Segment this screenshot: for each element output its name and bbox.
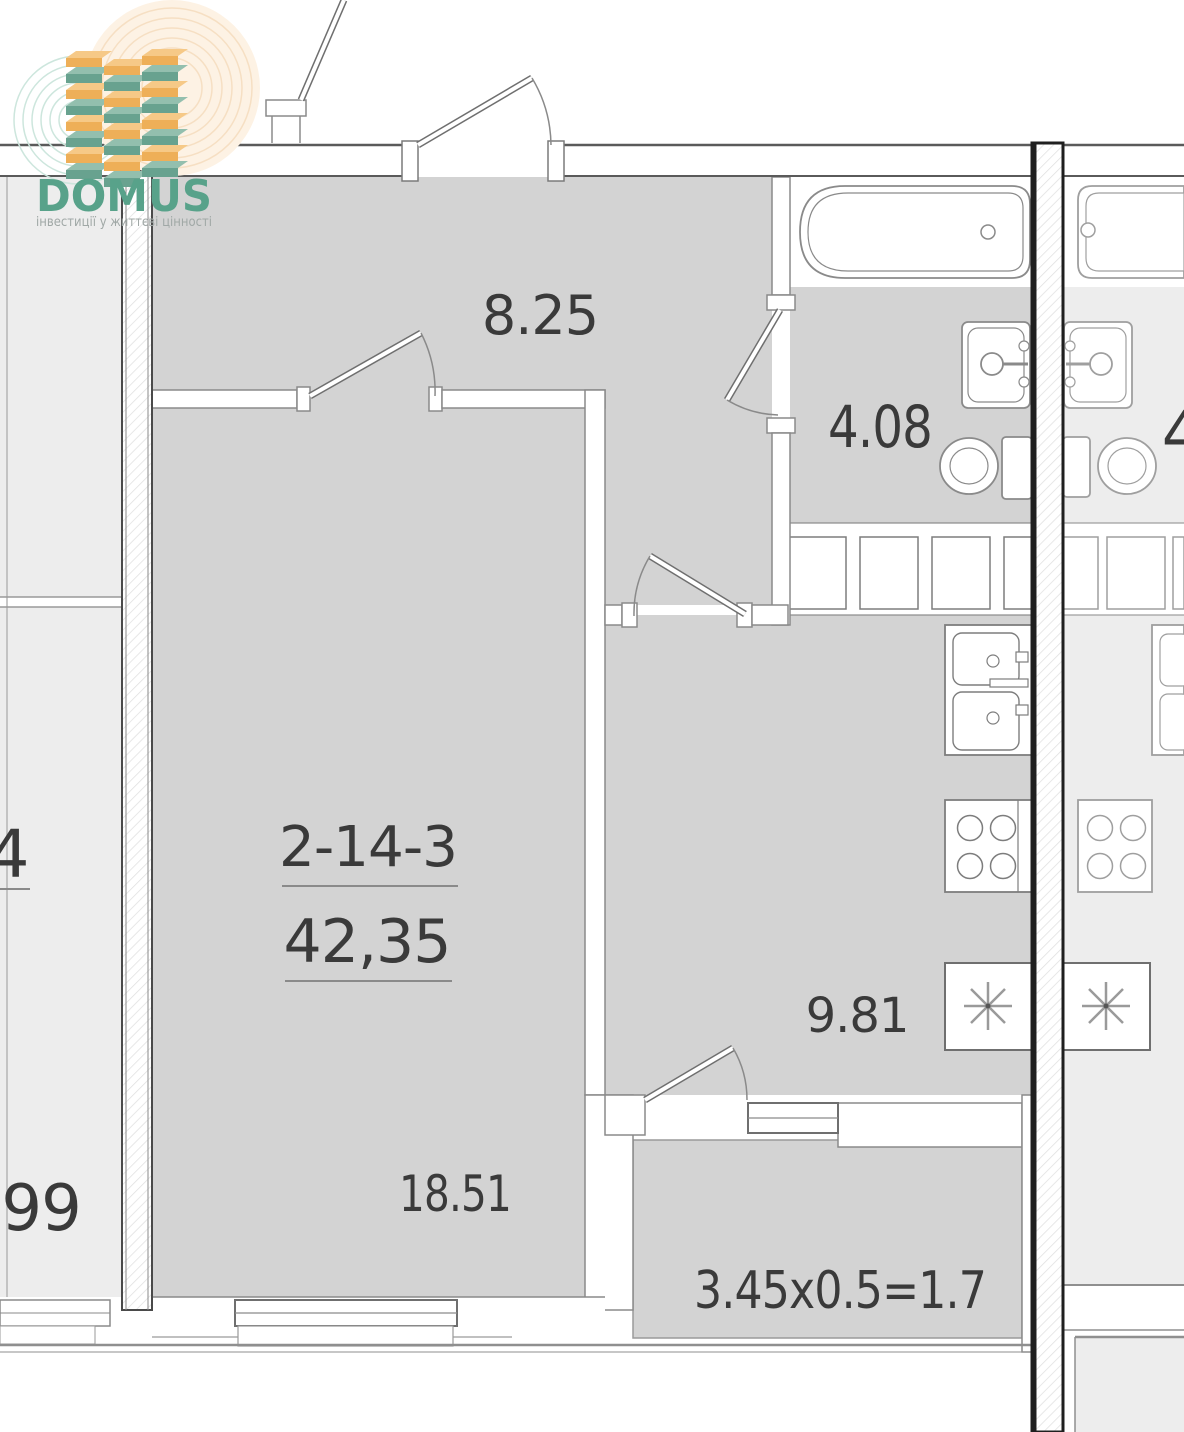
door-jamb <box>297 387 310 411</box>
neighbor-toilet-icon <box>1063 437 1156 497</box>
kitchen-sink-icon <box>945 625 1032 755</box>
neighbor-left-unit <box>0 177 122 1344</box>
door-jamb <box>767 418 795 433</box>
entrance-door-swing <box>418 78 551 145</box>
label-hallway-area: 8.25 <box>482 284 598 347</box>
hatched-wall <box>122 170 152 1310</box>
door-jamb <box>548 141 564 181</box>
label-living-area: 18.51 <box>399 1165 511 1223</box>
floor-plan: 8.25 4.08 9.81 2-14-3 42,35 18.51 3.45x0… <box>0 0 1184 1432</box>
door-jamb <box>767 295 795 310</box>
bathtub-icon <box>800 186 1030 278</box>
neighbor-right-unit <box>1063 186 1184 1432</box>
stove-icon <box>945 800 1032 892</box>
label-neighbor-left-area: .99 <box>0 1172 81 1246</box>
neighbor-bathtub-icon <box>1078 186 1184 278</box>
neighbor-sink-icon <box>1064 322 1132 408</box>
wall-hall-bath-lower <box>772 433 790 625</box>
wall-living-kitchen <box>585 390 605 1095</box>
party-wall <box>1032 143 1063 1432</box>
label-unit-id: 2-14-3 <box>279 815 457 880</box>
door-jamb <box>605 1095 645 1135</box>
label-neighbor-right-area: 4 <box>1162 397 1184 470</box>
wall-kitchen-top-right <box>752 605 788 625</box>
door-jamb <box>402 141 418 181</box>
neighbor-balcony-floor <box>1075 1337 1184 1432</box>
window-balcony <box>748 1103 838 1133</box>
floor-plan-page: 8.25 4.08 9.81 2-14-3 42,35 18.51 3.45x0… <box>0 0 1184 1432</box>
label-neighbor-left-unit: 4 <box>0 816 29 893</box>
toilet-icon <box>940 437 1032 499</box>
neighbor-kitchen-sink-icon <box>1152 625 1184 755</box>
corridor-door <box>266 0 344 143</box>
logo-buildings-icon <box>66 49 188 187</box>
wall-bottom-exterior <box>0 1345 1032 1352</box>
label-bathroom-area: 4.08 <box>828 393 932 461</box>
label-balcony-area: 3.45x0.5=1.7 <box>694 1261 986 1321</box>
sink-icon <box>962 322 1030 408</box>
washing-machine-icon <box>945 963 1032 1050</box>
wall-hall-living-left <box>152 390 297 408</box>
wall-kitchen-top-left <box>605 605 622 625</box>
wardrobe-icons <box>788 523 1032 615</box>
label-unit-total-area: 42,35 <box>284 907 451 977</box>
wall-hall-living-right <box>442 390 605 408</box>
label-kitchen-area: 9.81 <box>806 988 909 1044</box>
neighbor-left-room-top <box>0 177 122 597</box>
wall-kitchen-balcony <box>838 1103 1022 1147</box>
neighbor-left-window <box>0 1300 110 1344</box>
neighbor-wardrobe-icons <box>1063 523 1184 615</box>
logo-tagline: інвестиції у життєві цінності <box>36 215 212 230</box>
neighbor-stove-icon <box>1078 800 1152 892</box>
neighbor-washing-machine-icon <box>1063 963 1150 1050</box>
wall-hall-bath-upper <box>772 177 790 295</box>
